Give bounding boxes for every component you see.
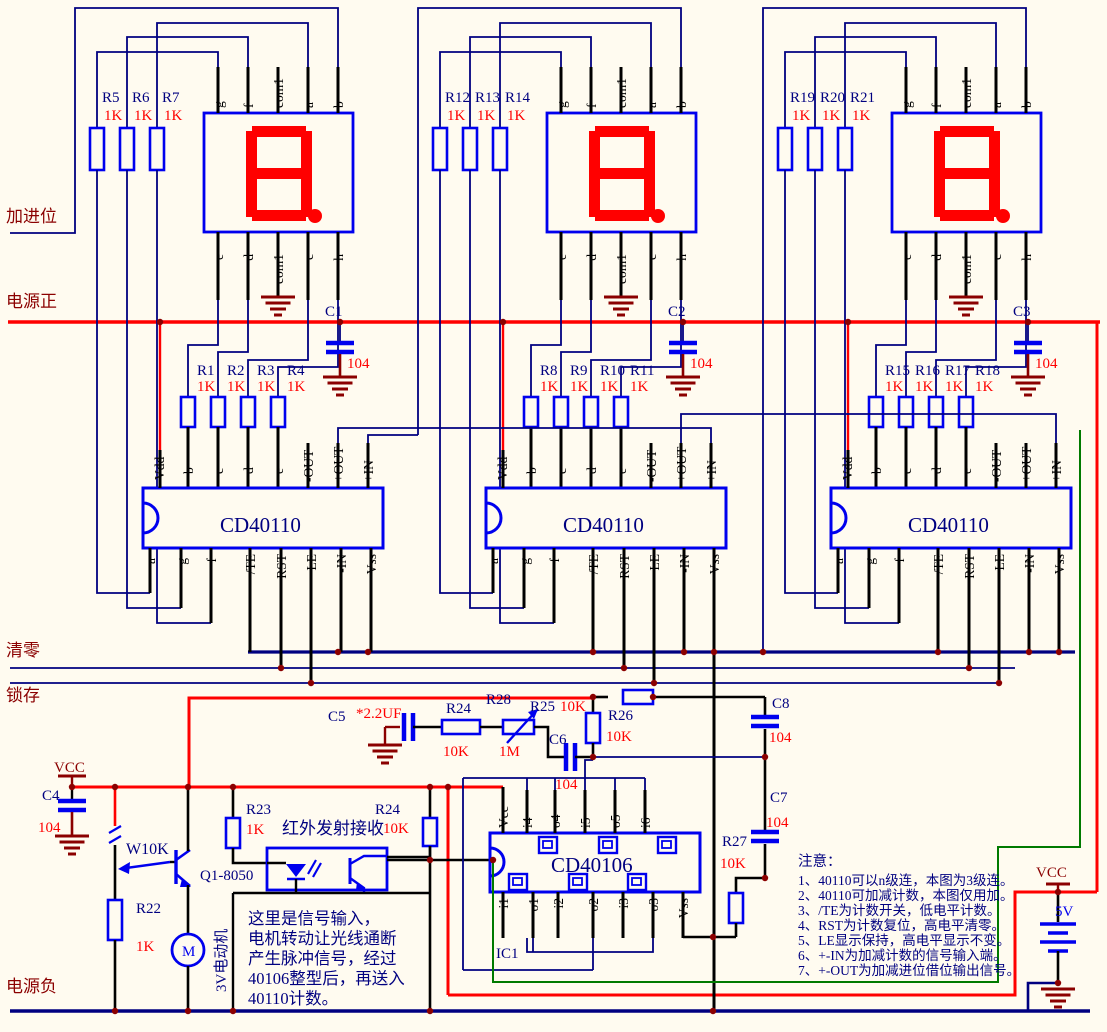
ic-label: CD40110 xyxy=(563,513,644,537)
junction-dot xyxy=(112,784,118,790)
resistor-value: 1K xyxy=(197,379,216,395)
schmitt-gate-icon xyxy=(599,837,617,853)
pin-label: i1 xyxy=(496,898,511,909)
digit-segment xyxy=(934,131,945,175)
seg-resistor xyxy=(90,128,104,170)
pin-label: b xyxy=(869,467,884,474)
junction-dot xyxy=(590,754,596,760)
pin-label: RST xyxy=(962,553,977,579)
resistor-value: 1K xyxy=(885,379,904,395)
pin-label: c xyxy=(301,254,316,260)
junction-dot xyxy=(590,649,596,655)
pin-label: /TE xyxy=(931,554,946,574)
value-label: 104 xyxy=(766,815,789,831)
pin-label: o2 xyxy=(586,898,601,912)
r25-resistor xyxy=(586,713,600,743)
junction-dot xyxy=(760,649,766,655)
pin-label: f xyxy=(892,558,907,563)
digit-resistor xyxy=(614,397,628,427)
pin-label: h xyxy=(674,254,689,261)
pin-label: e xyxy=(899,254,914,260)
junction-dot xyxy=(500,319,506,325)
pin-label: e xyxy=(554,254,569,260)
junction-dot xyxy=(490,857,496,863)
digit-resistor xyxy=(181,397,195,427)
wire xyxy=(736,878,765,893)
pin-label: f xyxy=(929,103,944,108)
ref-label: R28 xyxy=(486,692,511,708)
cap-value: 104 xyxy=(347,356,370,372)
seg-resistor xyxy=(838,128,852,170)
motor_label-label: 3V电动机 xyxy=(213,929,230,992)
ref-label: C6 xyxy=(549,732,567,748)
pin-label: com1 xyxy=(959,254,974,284)
digit-segment xyxy=(589,131,600,175)
resistor-ref: R18 xyxy=(975,363,1000,379)
transistor-collector xyxy=(176,850,190,860)
resistor-ref: R11 xyxy=(630,363,654,379)
clear-label: 清零 xyxy=(6,641,40,660)
resistor-ref: R10 xyxy=(600,363,625,379)
junction-dot xyxy=(445,784,451,790)
junction-dot xyxy=(1025,319,1031,325)
pin-label: Vss xyxy=(676,898,691,918)
note-item: 6、+-IN为加减计数的信号输入端。 xyxy=(798,948,1007,963)
decimal-point xyxy=(308,209,322,223)
cap-ref: C1 xyxy=(325,304,343,320)
r27-resistor xyxy=(729,893,743,923)
pin-label: g xyxy=(174,558,189,565)
junction-dot xyxy=(680,319,686,325)
pin-label: b xyxy=(524,467,539,474)
pin-label: i3 xyxy=(616,898,631,909)
seg-resistor xyxy=(808,128,822,170)
value-label: 104 xyxy=(769,730,792,746)
resistor-value: 1K xyxy=(630,379,649,395)
pin-label: o1 xyxy=(526,898,541,912)
seg-resistor xyxy=(433,128,447,170)
pot-tick xyxy=(109,836,121,843)
resistor-value: 1K xyxy=(852,108,871,124)
junction-dot xyxy=(711,649,717,655)
pin-label: Vcc xyxy=(496,806,511,828)
junction-dot xyxy=(427,857,433,863)
junction-dot xyxy=(650,694,656,700)
ref-label: R23 xyxy=(246,802,271,818)
junction-dot xyxy=(157,319,163,325)
pin-label: +OUT xyxy=(331,446,346,482)
junction-dot xyxy=(112,1008,118,1014)
annotation-line: 40106整型后，再送入 xyxy=(248,969,405,988)
seg-resistor xyxy=(493,128,507,170)
ic-label: CD40110 xyxy=(220,513,301,537)
junction-dot xyxy=(966,665,972,671)
resistor-value: 1K xyxy=(945,379,964,395)
digit-segment xyxy=(252,168,306,179)
digit-segment xyxy=(301,131,312,175)
value-label: 10K xyxy=(606,729,632,745)
wire xyxy=(585,760,593,790)
value-label: 10K xyxy=(443,744,469,760)
ref-label: R25 xyxy=(530,699,555,715)
annotation-line: 电机转动让光线通断 xyxy=(248,929,397,948)
resistor-ref: R21 xyxy=(850,90,875,106)
pin-label: +OUT xyxy=(674,446,689,482)
resistor-value: 1K xyxy=(507,108,526,124)
pot-tick xyxy=(109,826,121,833)
junction-dot xyxy=(337,319,343,325)
pin-label: d xyxy=(241,467,256,474)
wire xyxy=(368,435,418,443)
junction-dot xyxy=(69,784,75,790)
resistor-value: 1K xyxy=(540,379,559,395)
digit-segment xyxy=(644,173,655,217)
resistor-ref: R1 xyxy=(197,363,215,379)
junction-dot xyxy=(335,649,341,655)
junction-dot xyxy=(230,784,236,790)
pin-label: e xyxy=(211,254,226,260)
resistor-value: 1K xyxy=(447,108,466,124)
value-label: 104 xyxy=(38,820,61,836)
pin-label: h xyxy=(331,254,346,261)
digit-segment xyxy=(989,131,1000,175)
seg-resistor xyxy=(463,128,477,170)
junction-dot xyxy=(762,875,768,881)
digit-segment xyxy=(595,168,649,179)
pin-label: o3 xyxy=(646,898,661,912)
carry_in-label: 加进位 xyxy=(6,207,57,226)
value-label: 1K xyxy=(246,822,265,838)
pin-label: LE xyxy=(992,554,1007,571)
transistor-label: Q1-8050 xyxy=(200,868,253,884)
resistor-value: 1K xyxy=(227,379,246,395)
schmitt-gate-icon xyxy=(509,874,527,890)
pin-label: +IN xyxy=(361,460,376,482)
pin-label: e xyxy=(271,468,286,474)
note-item: 2、40110可加减计数，本图仅用加。 xyxy=(798,888,1014,903)
resistor-ref: R9 xyxy=(570,363,588,379)
pin-label: d xyxy=(584,467,599,474)
resistor-ref: R6 xyxy=(132,90,150,106)
digit-segment xyxy=(940,210,994,221)
schmitt-gate-icon xyxy=(539,837,557,853)
digit-segment xyxy=(252,210,306,221)
ref-label: C8 xyxy=(772,696,790,712)
resistor-ref: R14 xyxy=(505,90,531,106)
junction-dot xyxy=(230,1008,236,1014)
decimal-point xyxy=(651,209,665,223)
schmitt-gate-icon xyxy=(658,837,676,853)
pot-label: W10K xyxy=(126,841,169,858)
vcc-label: VCC xyxy=(1036,865,1067,881)
digit-resistor xyxy=(929,397,943,427)
resistor-ref: R15 xyxy=(885,363,910,379)
pin-label: i5 xyxy=(578,817,593,828)
power_neg-label: 电源负 xyxy=(6,977,57,996)
resistor-ref: R20 xyxy=(820,90,845,106)
schmitt-gate-icon xyxy=(569,874,587,890)
resistor-value: 1K xyxy=(287,379,306,395)
digit-segment xyxy=(589,173,600,217)
pin-label: +OUT xyxy=(1019,446,1034,482)
pin-label: Vss xyxy=(1052,554,1067,574)
digit-segment xyxy=(989,173,1000,217)
annotation-line: 产生脉冲信号，经过 xyxy=(248,949,397,968)
r22-resistor xyxy=(108,900,122,940)
pin-label: e xyxy=(614,468,629,474)
cap-ref: C2 xyxy=(668,304,686,320)
resistor-ref: R8 xyxy=(540,363,558,379)
pin-label: f xyxy=(241,103,256,108)
pin-label: c xyxy=(899,468,914,474)
pin-label: f xyxy=(204,558,219,563)
latch-label: 锁存 xyxy=(6,686,40,705)
digit-segment xyxy=(246,131,257,175)
resistor-ref: R19 xyxy=(790,90,815,106)
cap-value: 104 xyxy=(690,356,713,372)
ref-label: C5 xyxy=(328,709,346,725)
pin-label: a xyxy=(831,558,846,564)
pin-label: c xyxy=(989,254,1004,260)
digit-resistor xyxy=(211,397,225,427)
pin-label: Vss xyxy=(707,554,722,574)
junction-dot xyxy=(845,319,851,325)
schmitt-gate-icon xyxy=(628,874,646,890)
junction-dot xyxy=(762,754,768,760)
cap-ref: C3 xyxy=(1013,304,1031,320)
ref-label: R26 xyxy=(608,708,634,724)
resistor-icon xyxy=(423,818,437,846)
resistor-ref: R7 xyxy=(162,90,180,106)
pin-label: f xyxy=(584,103,599,108)
pin-label: c xyxy=(554,468,569,474)
annotation-line: 40110计数。 xyxy=(248,989,338,1008)
junction-dot xyxy=(427,1008,433,1014)
note-item: 4、RST为计数复位，高电平清零。 xyxy=(798,917,1005,933)
resistor-value: 1K xyxy=(134,108,153,124)
pot-wiper xyxy=(126,862,170,868)
pin-label: o5 xyxy=(608,814,623,828)
value-label: *2.2UF xyxy=(356,706,401,722)
pin-label: b xyxy=(331,101,346,108)
junction-dot xyxy=(1055,889,1061,895)
pin-label: d xyxy=(241,254,256,261)
digit-resistor xyxy=(241,397,255,427)
value-label: 1K xyxy=(136,939,155,955)
junction-dot xyxy=(427,784,433,790)
junction-dot xyxy=(681,649,687,655)
resistor-ref: R13 xyxy=(475,90,500,106)
resistor-value: 1K xyxy=(570,379,589,395)
ref-label: C7 xyxy=(770,790,788,806)
junction-dot xyxy=(621,665,627,671)
digit-resistor xyxy=(899,397,913,427)
pin-label: com1 xyxy=(271,254,286,284)
pin-label: RST xyxy=(274,553,289,579)
pin-label: b xyxy=(674,101,689,108)
junction-dot xyxy=(185,1008,191,1014)
pin-label: a xyxy=(301,102,316,108)
digit-segment xyxy=(246,173,257,217)
pin-label: e xyxy=(959,468,974,474)
junction-dot xyxy=(185,784,191,790)
resistor-icon xyxy=(226,818,240,848)
pin-label: +IN xyxy=(704,460,719,482)
pin-label: -OUT xyxy=(644,449,659,482)
annotation-line: 这里是信号输入， xyxy=(248,909,380,928)
pin-label: +IN xyxy=(1049,460,1064,482)
junction-dot xyxy=(651,680,657,686)
resistor-value: 1K xyxy=(822,108,841,124)
pin-label: g xyxy=(554,101,569,108)
pin-label: a xyxy=(486,558,501,564)
digit-segment xyxy=(934,173,945,217)
resistor-ref: R4 xyxy=(287,363,305,379)
resistor-value: 1K xyxy=(792,108,811,124)
resistor-value: 1K xyxy=(915,379,934,395)
junction-dot xyxy=(1056,649,1062,655)
digit-resistor xyxy=(869,397,883,427)
value-label: 10K xyxy=(383,821,409,837)
pin-label: Vdd xyxy=(495,457,510,480)
pin-label: h xyxy=(1019,254,1034,261)
value-label: 104 xyxy=(555,777,578,793)
resistor-ref: R2 xyxy=(227,363,245,379)
resistor-ref: R16 xyxy=(915,363,941,379)
pin-label: a xyxy=(644,102,659,108)
digit-resistor xyxy=(959,397,973,427)
digit-segment xyxy=(301,173,312,217)
junction-dot xyxy=(365,649,371,655)
wire xyxy=(527,938,653,952)
ref-label: R27 xyxy=(722,834,748,850)
junction-dot xyxy=(590,694,596,700)
pin-label: -IN xyxy=(677,554,692,573)
ic-label: CD40106 xyxy=(551,853,633,877)
pin-label: -OUT xyxy=(989,449,1004,482)
voltage-label: 5V xyxy=(1055,904,1074,920)
r24a-resistor xyxy=(442,720,480,734)
ref-label: R24 xyxy=(375,802,401,818)
pin-label: com1 xyxy=(614,254,629,284)
pin-label: g xyxy=(517,558,532,565)
resistor-value: 1K xyxy=(975,379,994,395)
pot-arrow xyxy=(118,862,130,874)
pin-label: b xyxy=(181,467,196,474)
pin-label: d xyxy=(929,254,944,261)
resistor-value: 1K xyxy=(600,379,619,395)
wire xyxy=(1028,983,1058,1011)
resistor-ref: R17 xyxy=(945,363,971,379)
pin-label: g xyxy=(899,101,914,108)
pin-label: com1 xyxy=(614,78,629,108)
pin-label: com1 xyxy=(271,78,286,108)
digit-resistor xyxy=(584,397,598,427)
pin-label: i6 xyxy=(638,817,653,828)
value-label: 1M xyxy=(499,744,520,760)
pin-label: Vdd xyxy=(840,457,855,480)
pin-label: RST xyxy=(617,553,632,579)
pin-label: i4 xyxy=(520,817,535,828)
junction-dot xyxy=(1055,980,1061,986)
pin-label: -IN xyxy=(1022,554,1037,573)
pin-label: Vss xyxy=(364,554,379,574)
resistor-ref: R5 xyxy=(102,90,120,106)
digit-segment xyxy=(595,210,649,221)
vcc-label: VCC xyxy=(54,760,85,776)
value-label: 10K xyxy=(720,856,746,872)
pin-label: a xyxy=(143,558,158,564)
junction-dot xyxy=(278,665,284,671)
digit-segment xyxy=(940,126,994,137)
pin-label: b xyxy=(1019,101,1034,108)
pin-label: /TE xyxy=(586,554,601,574)
pin-label: i2 xyxy=(551,898,566,909)
pin-label: a xyxy=(989,102,1004,108)
resistor-value: 1K xyxy=(164,108,183,124)
junction-dot xyxy=(710,1008,716,1014)
ref-label: R22 xyxy=(136,901,161,917)
counter-circuit-schematic: R51KR61KR71Kgfcom1abedcom1chR11KR21KR31K… xyxy=(0,0,1107,1032)
digit-resistor xyxy=(271,397,285,427)
value-label: 10K xyxy=(560,699,586,715)
pin-label: c xyxy=(644,254,659,260)
digit-resistor xyxy=(524,397,538,427)
junction-dot xyxy=(935,649,941,655)
r26-resistor xyxy=(623,690,653,704)
seg-resistor xyxy=(778,128,792,170)
note-item: 3、/TE为计数开关，低电平计数。 xyxy=(798,903,1001,918)
resistor-value: 1K xyxy=(257,379,276,395)
seg-resistor xyxy=(150,128,164,170)
resistor-ref: R12 xyxy=(445,90,470,106)
note-item: 7、+-OUT为加减进位借位输出信号。 xyxy=(798,963,1020,978)
opto_label-label: 红外发射接收 xyxy=(282,819,384,838)
pin-label: d xyxy=(929,467,944,474)
pin-label: -IN xyxy=(334,554,349,573)
pin-label: c xyxy=(211,468,226,474)
pin-label: LE xyxy=(304,554,319,571)
digit-segment xyxy=(644,131,655,175)
digit-segment xyxy=(252,126,306,137)
pin-label: -OUT xyxy=(301,449,316,482)
wire xyxy=(233,848,267,863)
pin-label: com1 xyxy=(959,78,974,108)
junction-dot xyxy=(308,680,314,686)
optocoupler xyxy=(267,848,387,890)
pin-label: LE xyxy=(647,554,662,571)
note-item: 1、40110可以n级连，本图为3级连。 xyxy=(798,873,1014,888)
seg-resistor xyxy=(120,128,134,170)
ref-label: R24 xyxy=(446,701,472,717)
ref-label: IC1 xyxy=(496,946,519,962)
ref-label: C4 xyxy=(42,788,60,804)
pin-label: g xyxy=(862,558,877,565)
junction-dot xyxy=(996,680,1002,686)
pin-label: Vdd xyxy=(152,457,167,480)
pin-label: g xyxy=(211,101,226,108)
pin-label: f xyxy=(547,558,562,563)
cap-value: 104 xyxy=(1035,356,1058,372)
resistor-ref: R3 xyxy=(257,363,275,379)
ic-label: CD40110 xyxy=(908,513,989,537)
resistor-value: 1K xyxy=(477,108,496,124)
note-item: 5、LE显示保持，高电平显示不变。 xyxy=(798,932,1010,948)
motor-label: M xyxy=(182,944,195,960)
pin-label: d xyxy=(584,254,599,261)
pin-label: /TE xyxy=(243,554,258,574)
junction-dot xyxy=(710,934,716,940)
